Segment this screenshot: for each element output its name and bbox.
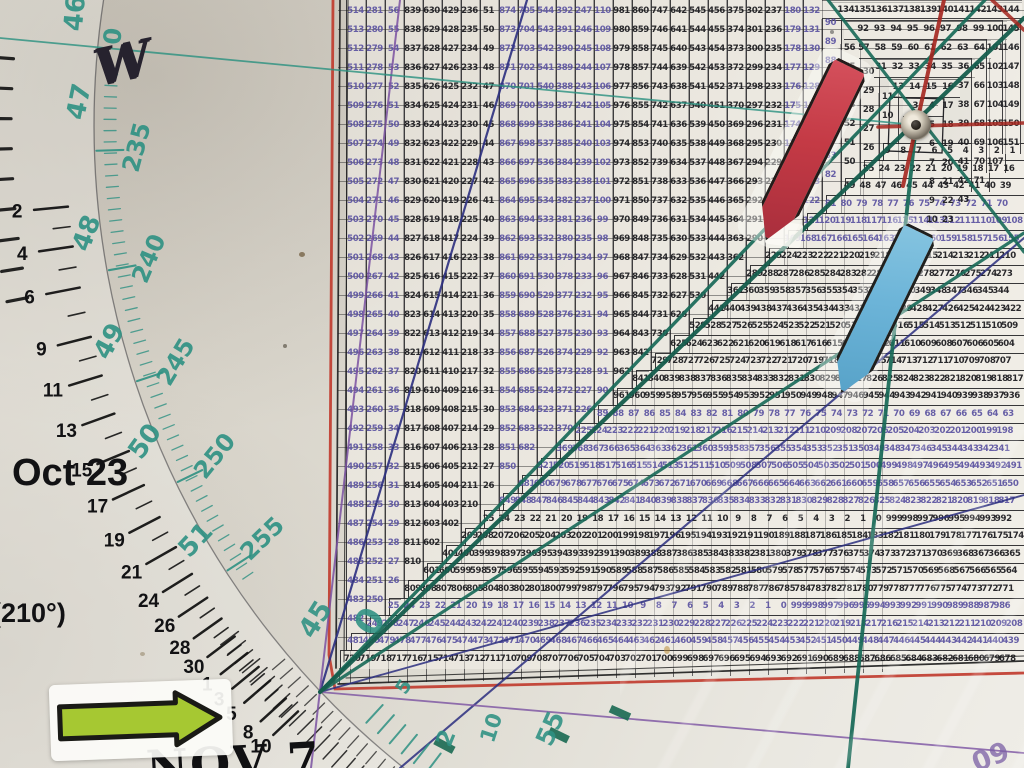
svg-text:235: 235 [117,119,157,175]
svg-text:6: 6 [24,287,35,308]
svg-text:46: 46 [59,0,92,33]
svg-text:28: 28 [169,638,190,659]
svg-text:0: 0 [346,600,394,643]
plotting-board-photo: 1110987654321302928272625242322212019181… [0,0,1024,768]
svg-text:17: 17 [87,497,108,518]
svg-text:45: 45 [293,595,339,643]
svg-text:19: 19 [104,531,125,552]
green-arrow-icon [49,679,234,761]
svg-text:11: 11 [43,381,64,402]
grommet-pivot[interactable] [901,110,931,140]
svg-text:4: 4 [17,244,28,265]
logo-w: W [88,29,155,98]
svg-text:9: 9 [36,340,47,361]
svg-text:24: 24 [138,591,160,612]
svg-text:255: 255 [235,511,290,566]
svg-text:26: 26 [154,616,175,637]
svg-text:21: 21 [121,562,143,583]
svg-text:13: 13 [56,421,77,442]
svg-text:245: 245 [151,333,201,390]
svg-text:2: 2 [431,726,461,751]
svg-text:5: 5 [391,675,417,698]
green-arrow-sticker[interactable] [49,679,234,761]
svg-text:10: 10 [475,710,507,745]
svg-text:2: 2 [12,202,23,223]
date-label-oct: Oct 23 [12,452,128,495]
bearing-label: (210°) [0,598,66,629]
svg-text:240: 240 [126,230,171,287]
